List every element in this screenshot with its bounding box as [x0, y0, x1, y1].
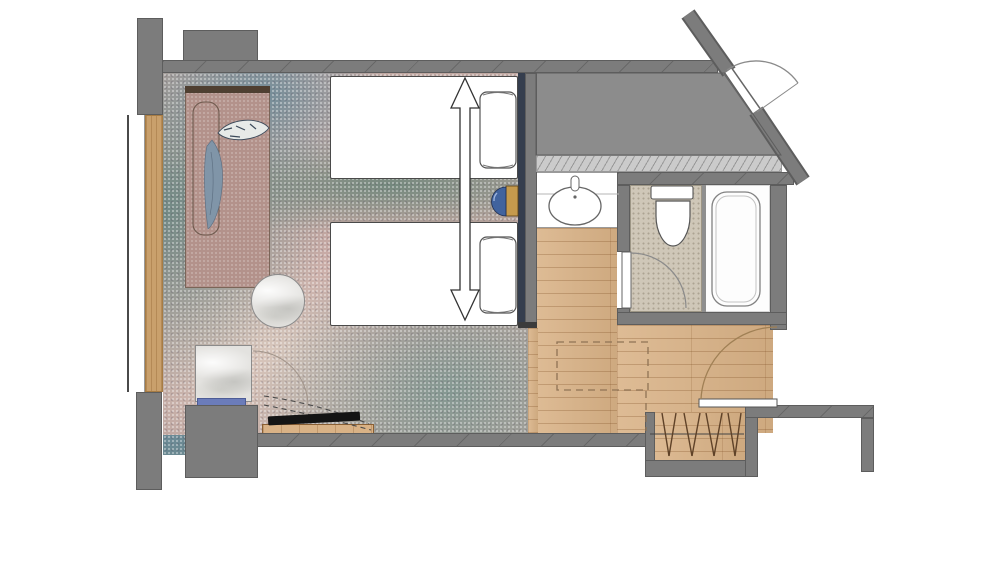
wall-top-band [162, 60, 718, 73]
wall-adjacent-right [861, 418, 874, 472]
wall-wardrobe-bottom [645, 460, 758, 477]
toilet-room-floor [630, 185, 702, 312]
window-daybed [185, 86, 270, 288]
floor-plan [0, 0, 1000, 563]
wall-bath-bottom [617, 312, 787, 325]
hall-floor-sliver [528, 328, 538, 433]
wall-headboard-cap [518, 322, 537, 328]
vanity-counter [536, 172, 620, 228]
wall-topleft-column [137, 18, 163, 115]
wall-bottomleft-block [185, 405, 258, 478]
daybed-back-trim [185, 86, 270, 93]
wall-bath-top [617, 172, 794, 185]
wardrobe-floor [648, 412, 745, 460]
wall-bath-left-a [617, 185, 630, 252]
minibar-cabinet [195, 345, 252, 402]
wall-bottomleft-column [136, 392, 162, 490]
wall-adjacent-top [745, 405, 874, 418]
window-sill [145, 115, 163, 392]
carpet-alcove [163, 435, 185, 455]
window-glazing [127, 115, 145, 392]
bathtub-room-floor [705, 185, 770, 312]
wall-bottom-band [255, 433, 647, 447]
vanity-hall-floor [536, 228, 618, 433]
wall-headboard [525, 73, 537, 328]
wall-bath-right [770, 185, 787, 330]
twin-bed-upper [330, 76, 518, 179]
headboard-panel [518, 73, 525, 328]
twin-bed-lower [330, 222, 518, 326]
wall-bath-divider [702, 185, 706, 312]
round-side-table [251, 274, 305, 328]
service-shaft [536, 73, 782, 155]
wall-shaft-bottom [536, 155, 782, 172]
